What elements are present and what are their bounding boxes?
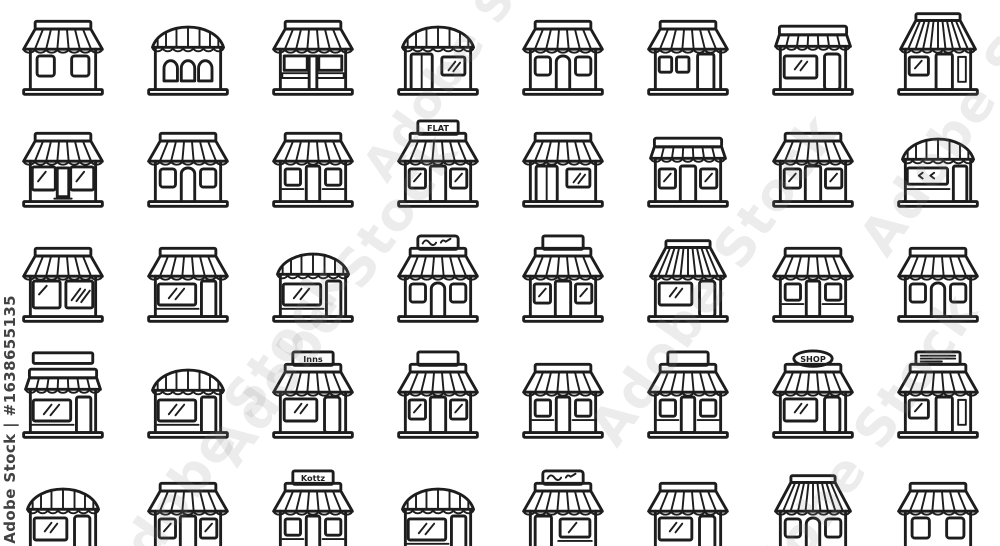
store-curved-awning-icon [250,223,375,338]
svg-text:Inns: Inns [303,354,323,364]
store-inns-sign-icon: Inns [250,338,375,456]
store-panel-door-icon [750,223,875,338]
store-door-left-icon [500,456,625,546]
store-decorated-windows-icon [750,108,875,223]
store-sign-silled-icon [625,338,750,456]
store-paned-windows-icon [875,456,1000,546]
store-kottz-sign-icon: Kottz [250,456,375,546]
store-door-center-icon [500,0,625,108]
stock-id-watermark: Adobe Stock | #1638655135 [1,295,19,544]
store-arrow-window-icon [875,108,1000,223]
store-silled-windows-icon [250,108,375,223]
store-rounded-openings-icon [125,108,250,223]
store-tall-striped-icon [750,456,875,546]
icon-sheet: Adobe Stock Adobe Stock Adobe Stock Adob… [0,0,1000,546]
store-flat-sign-icon: FLAT [375,108,500,223]
store-double-door-icon [375,0,500,108]
store-wide-window-icon [125,223,250,338]
store-lined-sign-icon [875,338,1000,456]
store-classic-front-icon [125,456,250,546]
store-blank-sign-icon [500,223,625,338]
store-striped-awning-icon [625,223,750,338]
store-dome-awning-icon [125,338,250,456]
store-tall-awning-icon [875,0,1000,108]
store-wide-windows-icon [0,108,125,223]
store-paneled-windows-icon [500,338,625,456]
store-script-sign-icon [375,223,500,338]
store-icon-grid: FLATInnsSHOPKottz [0,0,1000,546]
store-flat-canopy-icon [625,108,750,223]
svg-text:FLAT: FLAT [426,122,448,132]
store-shop-sign-icon: SHOP [750,338,875,456]
store-top-sign-icon [375,338,500,456]
store-rounded-windows-icon [875,223,1000,338]
svg-text:Kottz: Kottz [300,473,325,483]
store-door-right-icon [625,0,750,108]
store-double-door-small-window-icon [500,108,625,223]
svg-text:SHOP: SHOP [800,354,826,364]
store-slash-window-icon [625,456,750,546]
store-handle-door-icon [375,456,500,546]
store-arched-windows-icon [125,0,250,108]
store-front-band-icon [250,0,375,108]
store-two-windows-icon [0,0,125,108]
store-flat-awning-icon [750,0,875,108]
